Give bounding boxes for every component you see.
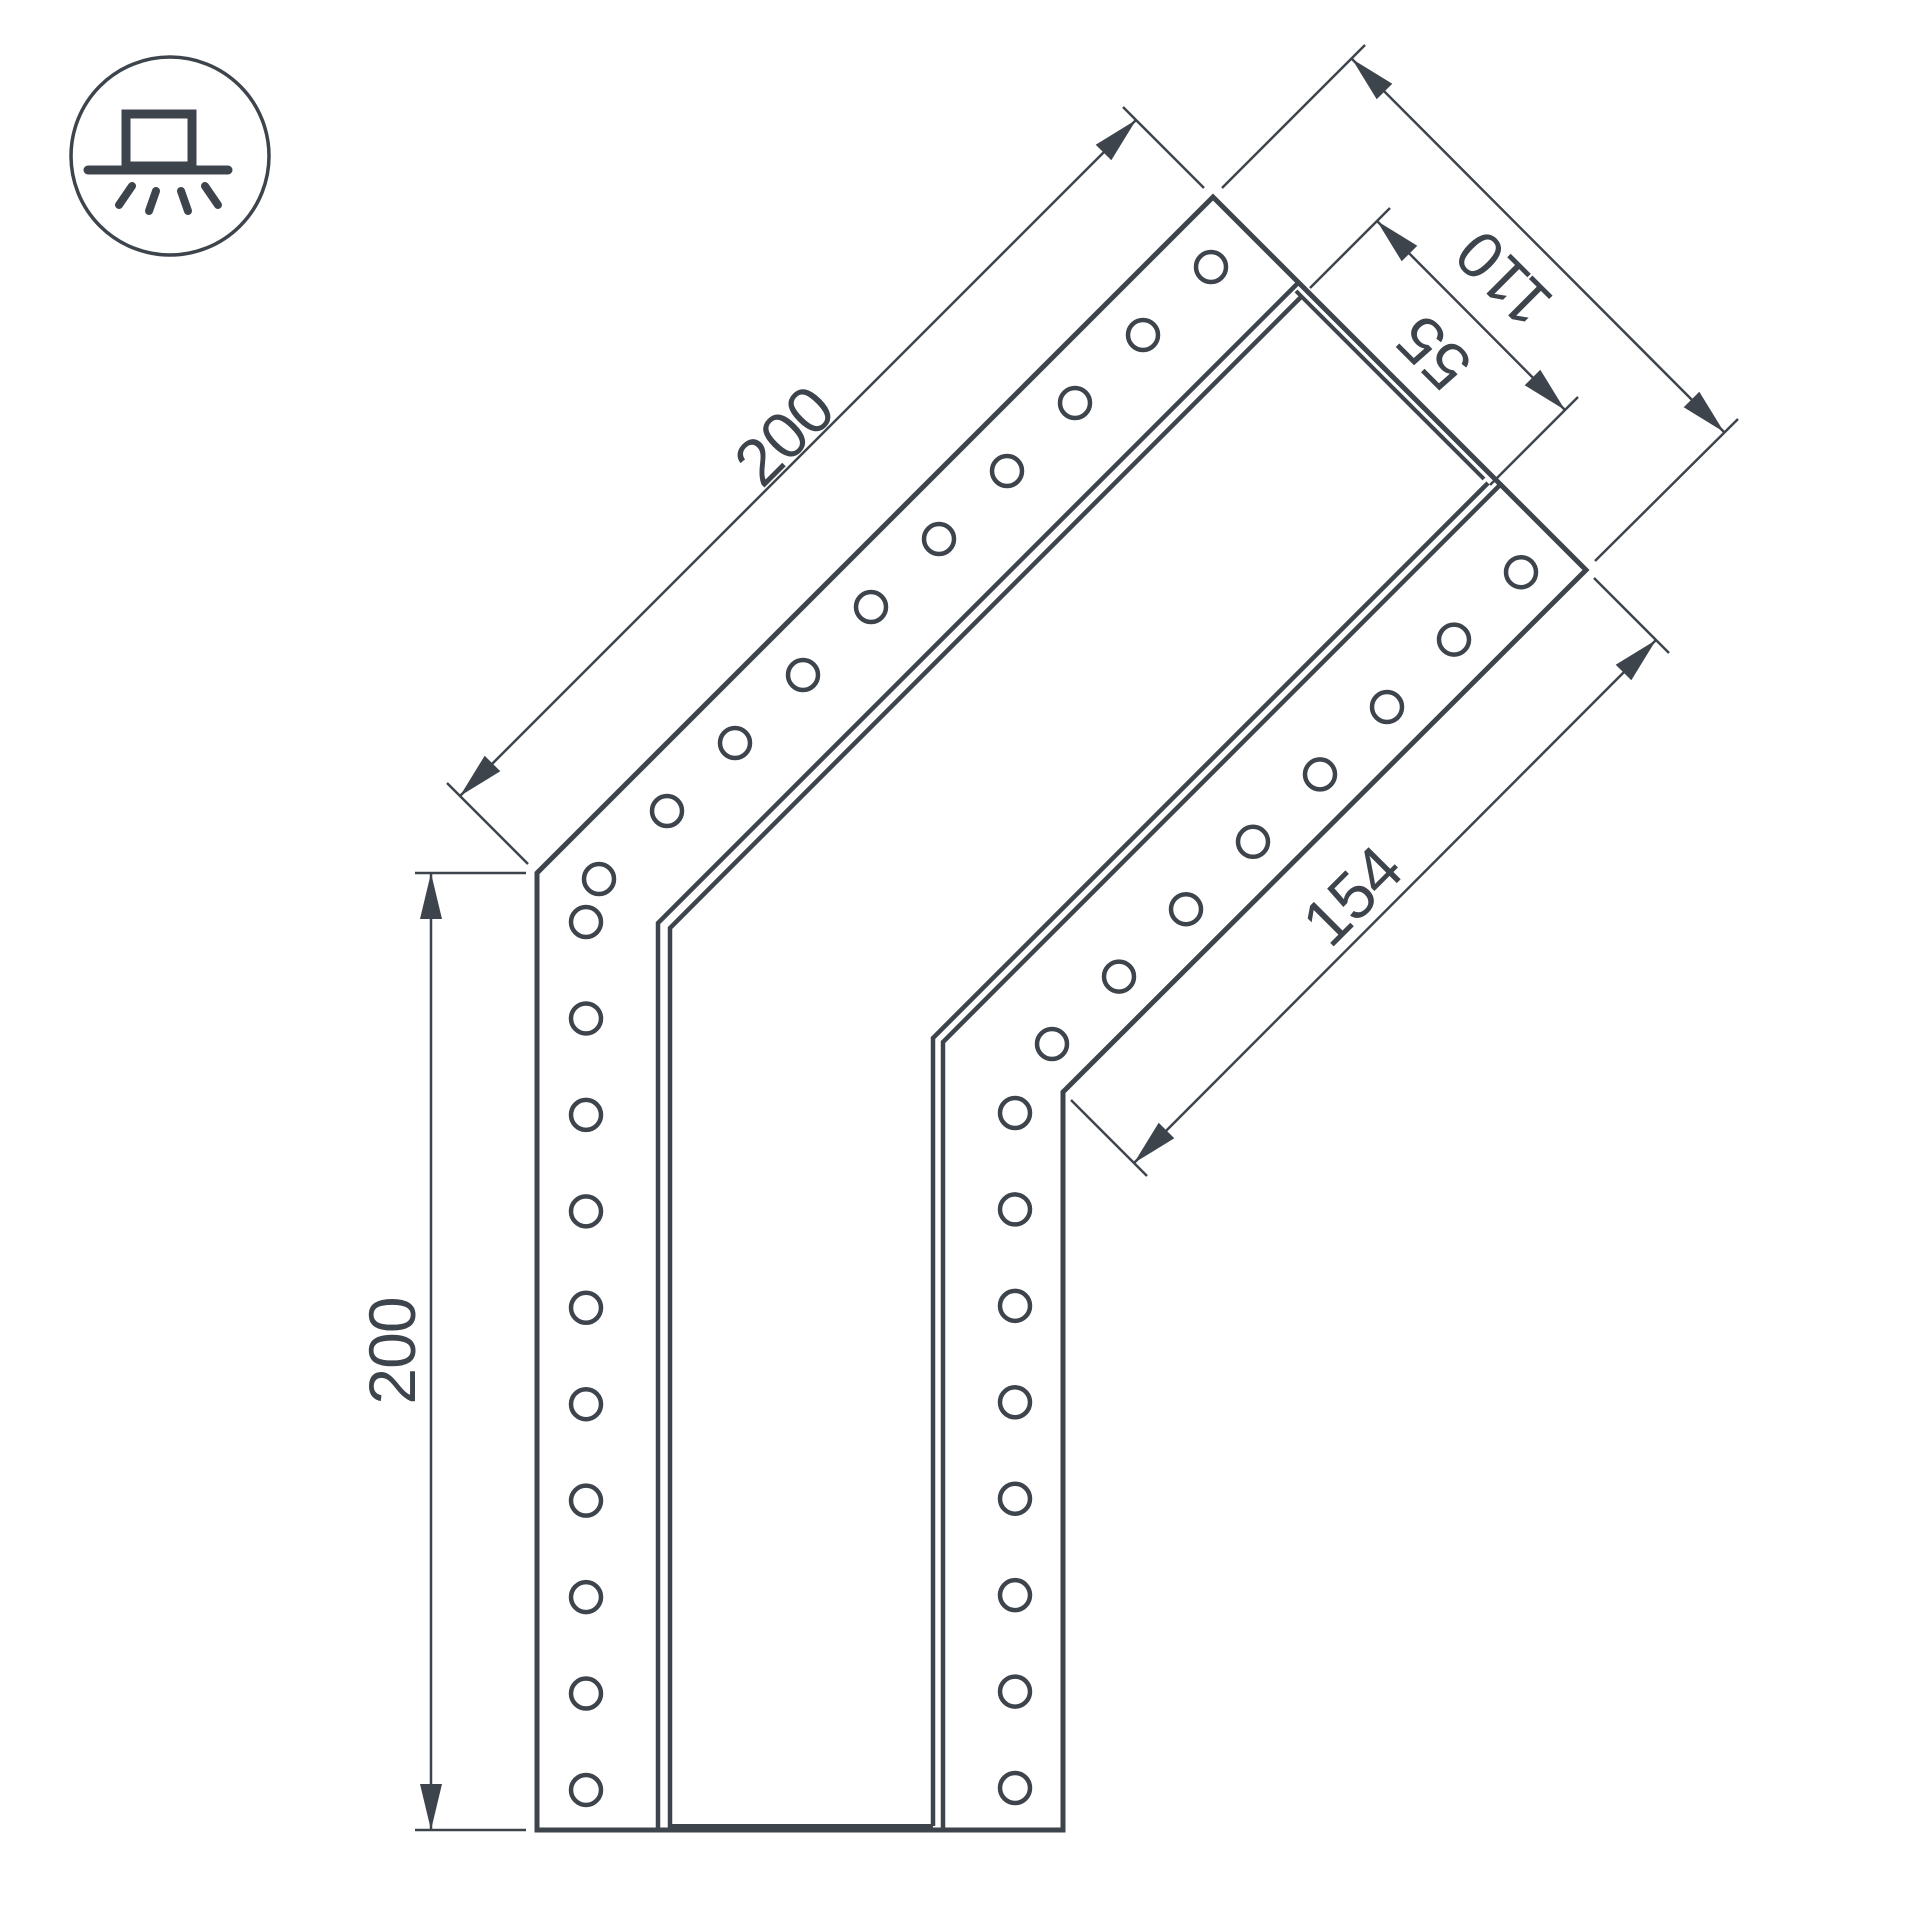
mounting-hole (571, 1486, 601, 1516)
mounting-hole (1000, 1387, 1030, 1417)
dimension-inner-154: 154 (1071, 578, 1669, 1176)
mounting-hole (571, 907, 601, 937)
drawing-page: 200 200 154 110 55 (0, 0, 1920, 1919)
icon-circle (71, 57, 269, 255)
dimension-diagonal-200: 200 (447, 107, 1204, 864)
mounting-hole (1037, 1029, 1067, 1059)
mounting-holes (571, 252, 1536, 1805)
extension-line (1310, 208, 1390, 288)
icon-light-rays (119, 186, 218, 211)
mounting-hole (720, 728, 750, 758)
mounting-hole (1104, 962, 1134, 992)
mounting-hole (1238, 827, 1268, 857)
dim-label-110: 110 (1441, 217, 1566, 342)
profile-part (537, 197, 1586, 1830)
mounting-hole (1000, 1677, 1030, 1707)
end-face-recess (1296, 291, 1484, 479)
mounting-hole (788, 660, 818, 690)
extension-line (1123, 107, 1204, 188)
mounting-hole (652, 796, 682, 826)
dim-label-diagonal-200: 200 (720, 372, 848, 500)
mounting-hole (1372, 692, 1402, 722)
icon-fixture-box (126, 114, 192, 166)
mounting-hole (1128, 320, 1158, 350)
mounting-hole (1000, 1773, 1030, 1803)
mounting-hole (1000, 1098, 1030, 1128)
mounting-hole (992, 456, 1022, 486)
mounting-hole (1000, 1291, 1030, 1321)
part-outline (537, 197, 1586, 1830)
surface-mount-light-icon (71, 57, 269, 255)
mounting-hole (1000, 1580, 1030, 1610)
mounting-hole (571, 1679, 601, 1709)
extension-line (1222, 45, 1365, 188)
mounting-hole (571, 1775, 601, 1805)
mounting-hole (1506, 557, 1536, 587)
mounting-hole (1439, 625, 1469, 655)
arrowhead (420, 1784, 442, 1830)
mounting-hole (571, 1196, 601, 1226)
mounting-hole (1196, 252, 1226, 282)
mounting-hole (571, 1293, 601, 1323)
mounting-hole (1305, 759, 1335, 789)
mounting-hole (571, 1100, 601, 1130)
mounting-hole (1171, 894, 1201, 924)
arrowhead (420, 873, 442, 919)
extension-line (1595, 419, 1738, 561)
mounting-hole (584, 864, 614, 894)
channel-wall-lines (658, 283, 1500, 1830)
technical-drawing: 200 200 154 110 55 (0, 0, 1920, 1919)
dim-label-55: 55 (1382, 302, 1485, 405)
dimension-vertical-200: 200 (355, 873, 526, 1830)
mounting-hole (924, 524, 954, 554)
extension-line (1490, 397, 1578, 485)
mounting-hole (571, 1389, 601, 1419)
mounting-hole (856, 592, 886, 622)
mounting-hole (571, 1003, 601, 1033)
dim-label-vertical-200: 200 (355, 1297, 429, 1404)
extension-line (1594, 578, 1669, 653)
mounting-hole (1000, 1194, 1030, 1224)
dimension-width-110: 110 (1222, 45, 1738, 561)
extension-line (1071, 1100, 1147, 1176)
mounting-hole (1060, 388, 1090, 418)
mounting-hole (1000, 1484, 1030, 1514)
mounting-hole (571, 1582, 601, 1612)
extension-line (447, 783, 528, 864)
